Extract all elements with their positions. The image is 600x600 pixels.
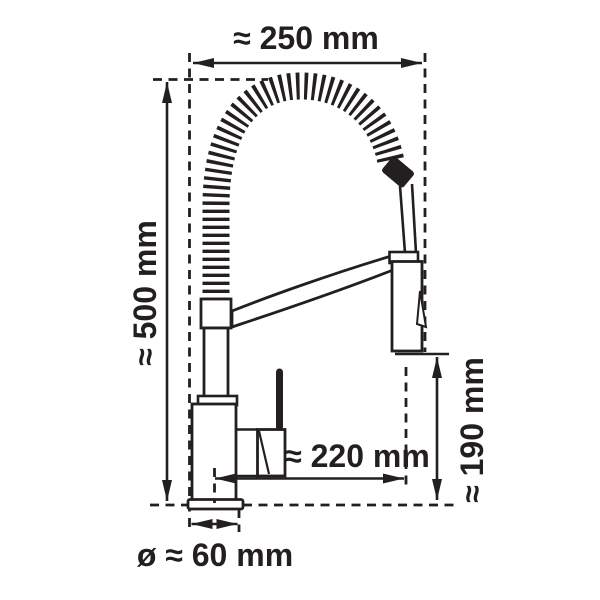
- spout-arm: [232, 254, 398, 327]
- dim-reach-label: ≈ 220 mm: [284, 438, 430, 474]
- lever-handle-base: [258, 430, 286, 477]
- dim-height-label: ≈ 500 mm: [127, 220, 163, 366]
- dim-base-diameter-label: ø ≈ 60 mm: [137, 537, 293, 573]
- faucet-dimension-diagram: ≈ 250 mm ≈ 500 mm ≈ 190 mm ≈ 220 mm ø ≈ …: [0, 0, 600, 600]
- spray-head: [392, 262, 422, 352]
- spray-hose-line: [400, 186, 405, 253]
- coil-collar: [201, 299, 231, 328]
- dim-clearance-label: ≈ 190 mm: [454, 357, 490, 503]
- faucet-column: [204, 328, 228, 397]
- dim-width-label: ≈ 250 mm: [233, 20, 379, 56]
- handle-rod: [276, 369, 283, 431]
- spray-hose-line: [412, 184, 416, 253]
